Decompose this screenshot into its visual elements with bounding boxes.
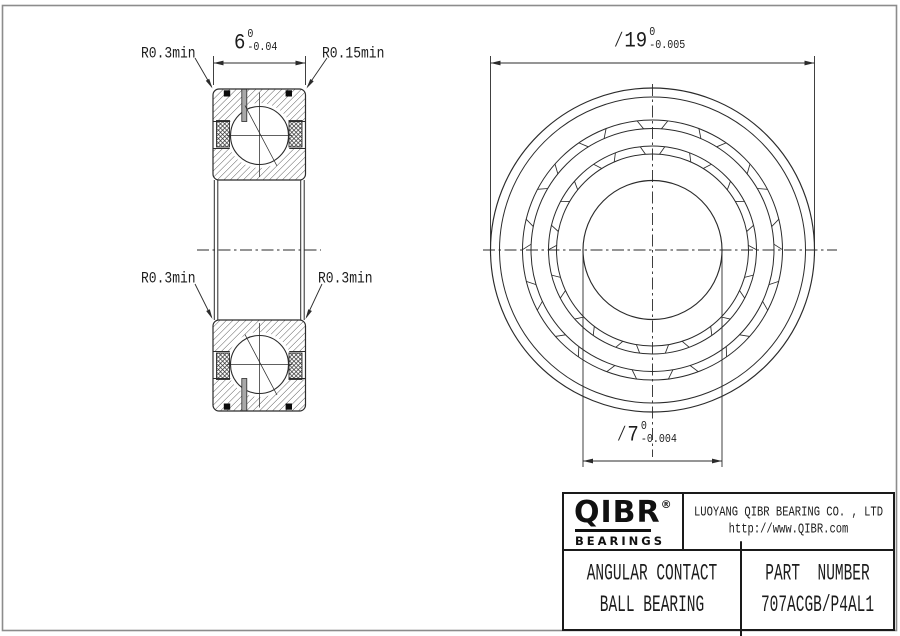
section-bottom [213, 320, 306, 411]
outer-dia-text: ∕19 0 -0.005 [613, 29, 685, 53]
section-view [195, 56, 327, 411]
outer-dia-tol-upper: 0 [649, 28, 685, 40]
width-tol-lower: -0.04 [247, 42, 277, 54]
bore-dia-tol-upper: 0 [641, 422, 677, 434]
cage-section-right [289, 353, 302, 380]
logo-text: QIBR [574, 495, 661, 530]
section-top [213, 89, 306, 180]
radius-label-mid-right: R0.3min [318, 269, 373, 287]
registered-mark: ® [661, 498, 672, 511]
part-number-value: 707ACGB/P4AL1 [761, 593, 874, 618]
title-block: QIBR® BEARINGS LUOYANG QIBR BEARING CO. … [562, 492, 895, 631]
radius-label-top-right: R0.15min [322, 44, 384, 62]
cage-section-left [217, 353, 230, 380]
width-dimension [214, 56, 306, 85]
bore-dia-value: ∕7 [616, 423, 639, 447]
part-number-label: PART NUMBER [765, 562, 869, 587]
seal-right [286, 90, 292, 96]
front-view [483, 56, 837, 467]
radius-label-mid-left: R0.3min [141, 269, 196, 287]
width-tol-upper: 0 [247, 30, 277, 42]
seal-left [224, 90, 230, 96]
bore-dia-tol-lower: -0.004 [641, 434, 677, 446]
product-line2: BALL BEARING [600, 593, 704, 618]
product-description-cell: ANGULAR CONTACT BALL BEARING [564, 541, 742, 636]
part-number-cell: PART NUMBER 707ACGB/P4AL1 [742, 541, 893, 636]
company-website: http://www.QIBR.com [729, 522, 849, 538]
outer-dia-value: ∕19 [613, 29, 647, 53]
drawing-sheet: R0.3min R0.15min R0.3min R0.3min 6 0 -0.… [0, 0, 900, 636]
seal-left [224, 404, 230, 410]
counterbore-notch [242, 89, 247, 122]
company-name: LUOYANG QIBR BEARING CO. , LTD [694, 505, 883, 521]
counterbore-notch [242, 379, 247, 412]
seal-right [286, 404, 292, 410]
outer-dia-tol-lower: -0.005 [649, 40, 685, 52]
radius-label-top-left: R0.3min [141, 44, 196, 62]
width-value: 6 [234, 31, 245, 55]
cage-section-left [217, 121, 230, 148]
cage-section-right [289, 121, 302, 148]
bore-dia-text: ∕7 0 -0.004 [616, 423, 677, 447]
product-line1: ANGULAR CONTACT [587, 562, 718, 587]
width-dimension-text: 6 0 -0.04 [234, 31, 277, 55]
